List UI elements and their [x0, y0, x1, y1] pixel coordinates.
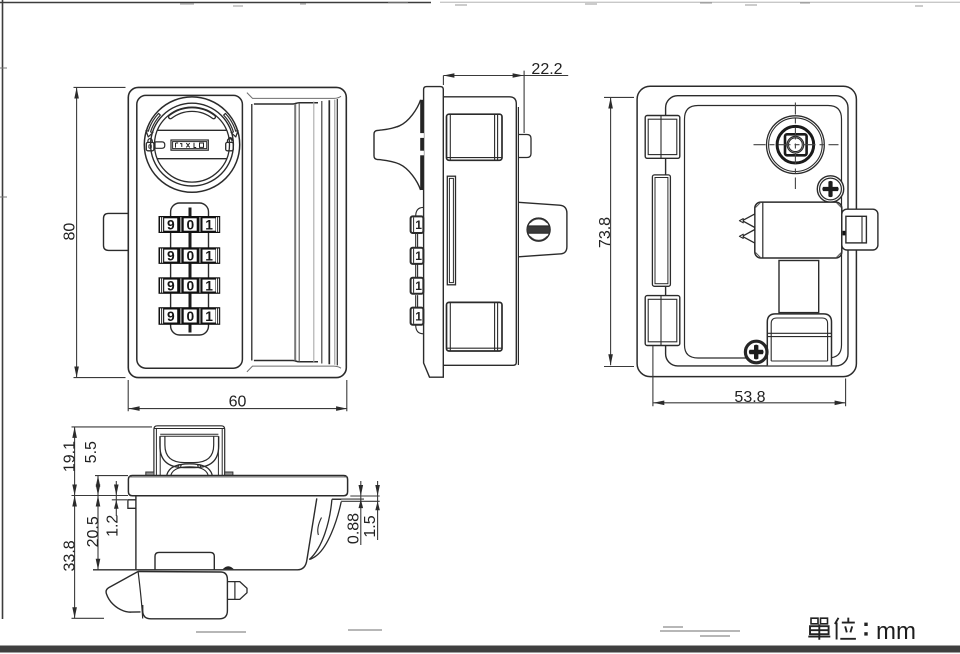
svg-text:73.8: 73.8: [597, 217, 614, 248]
svg-text:0: 0: [186, 309, 194, 324]
svg-text:0: 0: [186, 249, 194, 264]
svg-text:33.8: 33.8: [62, 540, 79, 571]
svg-text:22.2: 22.2: [531, 61, 562, 78]
svg-text:0.88: 0.88: [346, 513, 363, 544]
svg-text:19.1: 19.1: [62, 441, 79, 472]
svg-text:60: 60: [229, 393, 247, 410]
svg-text:1: 1: [205, 278, 213, 293]
svg-text:1.5: 1.5: [362, 515, 379, 537]
svg-text:53.8: 53.8: [734, 389, 765, 406]
svg-text:20.5: 20.5: [85, 516, 102, 547]
svg-text:9: 9: [167, 309, 175, 324]
svg-text:80: 80: [62, 223, 79, 241]
svg-text:1: 1: [415, 310, 422, 324]
svg-text:1: 1: [415, 279, 422, 293]
svg-text:0: 0: [186, 217, 194, 232]
svg-text:0: 0: [186, 278, 194, 293]
svg-text:1: 1: [205, 217, 213, 232]
svg-text:1: 1: [415, 218, 422, 232]
svg-text:mm: mm: [876, 618, 916, 645]
svg-text:1: 1: [205, 309, 213, 324]
svg-text:9: 9: [167, 217, 175, 232]
svg-text:1: 1: [415, 249, 422, 263]
svg-text:5.5: 5.5: [83, 441, 100, 463]
svg-text:1.2: 1.2: [105, 515, 122, 537]
svg-text:9: 9: [167, 249, 175, 264]
svg-text:9: 9: [167, 278, 175, 293]
svg-text:1: 1: [205, 249, 213, 264]
